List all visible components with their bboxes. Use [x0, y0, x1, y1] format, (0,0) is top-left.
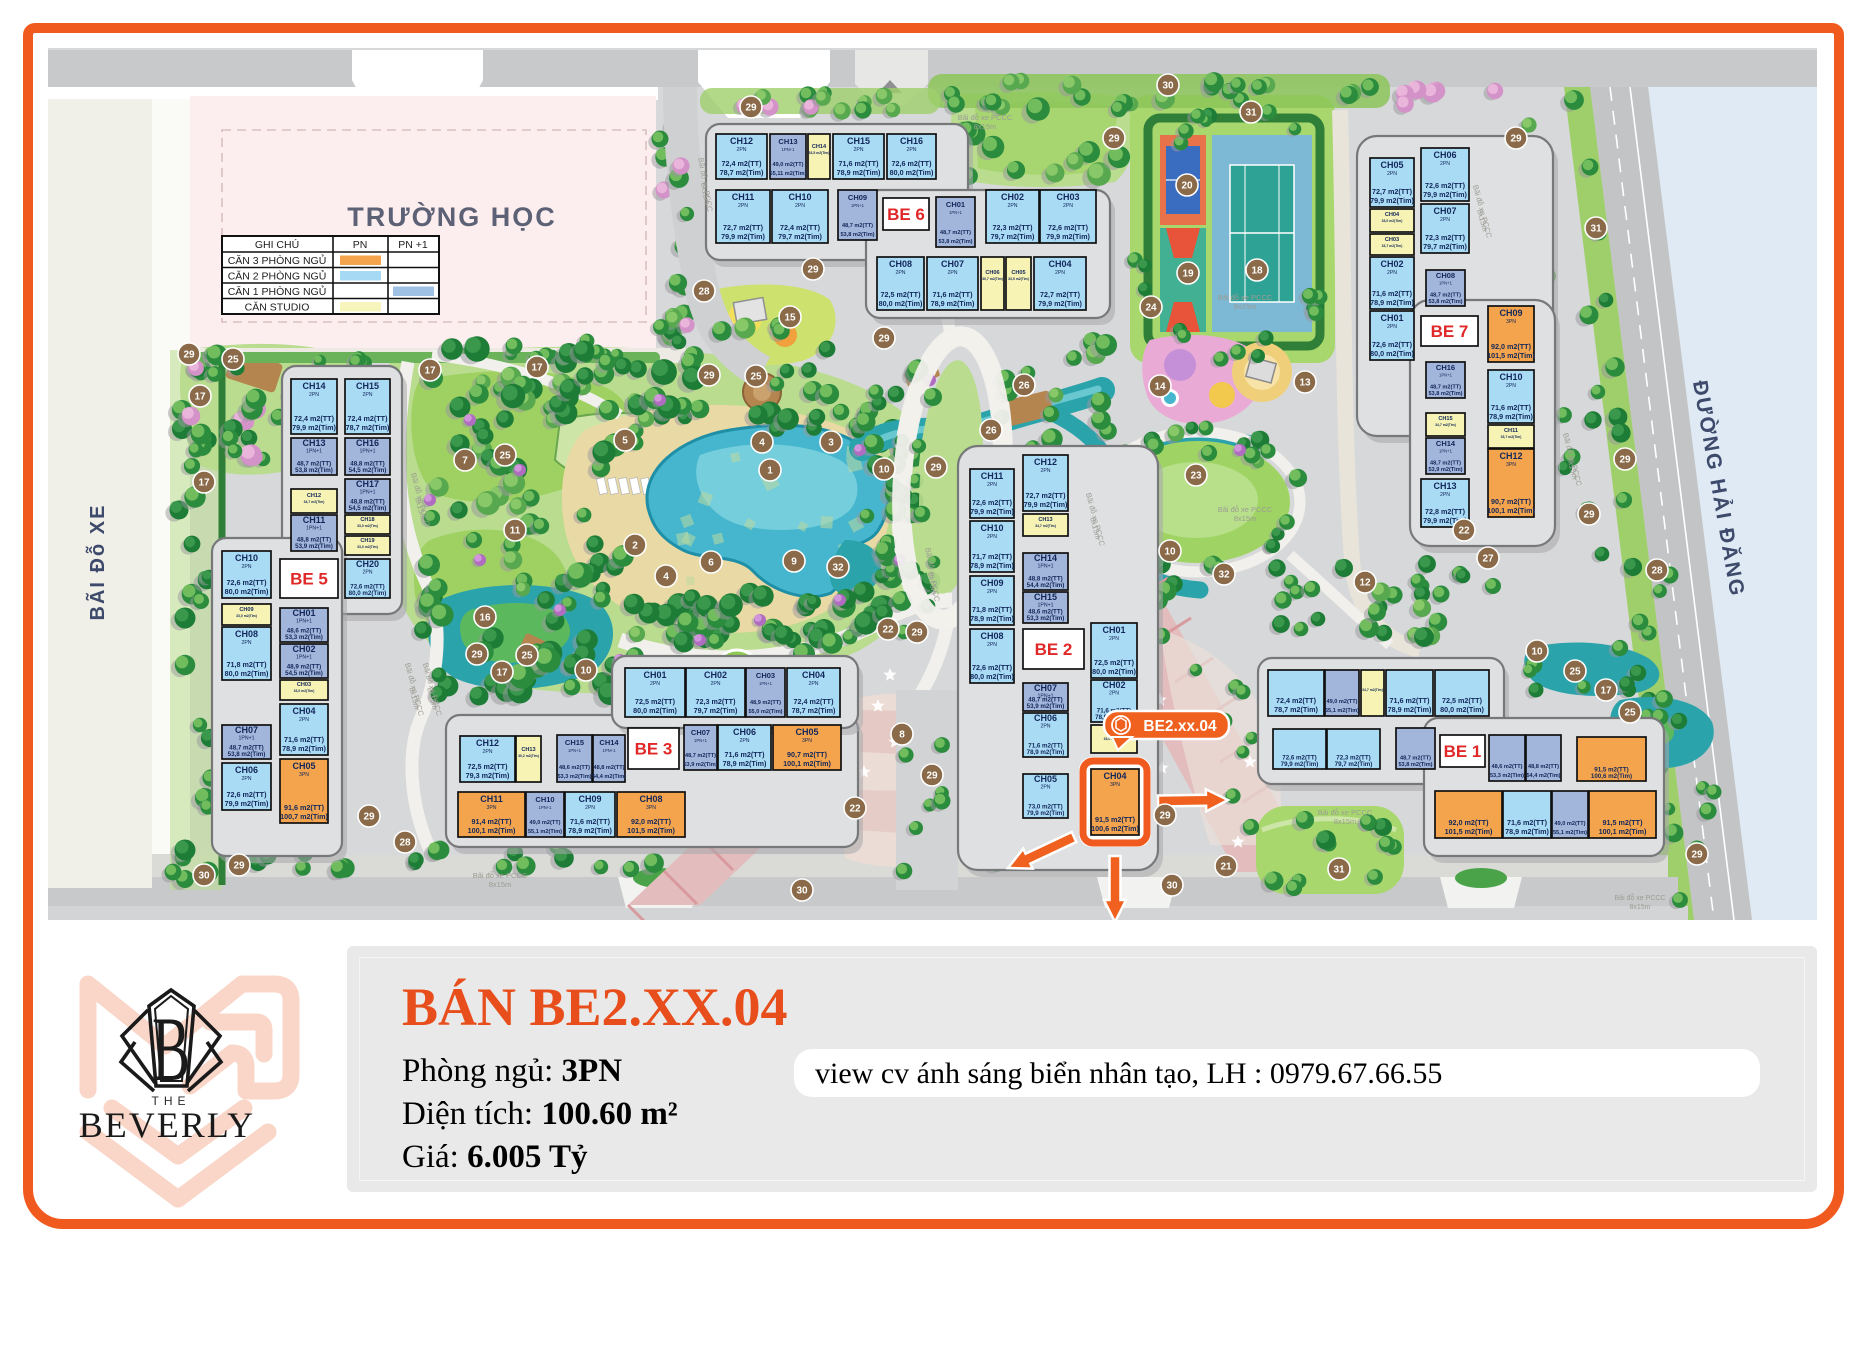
- svg-text:53,8 m2(Tim): 53,8 m2(Tim): [938, 239, 972, 245]
- svg-text:29: 29: [1510, 134, 1522, 145]
- svg-text:2PN: 2PN: [1109, 691, 1119, 697]
- svg-text:48,7 m2(TT): 48,7 m2(TT): [685, 753, 716, 759]
- svg-text:CH01: CH01: [643, 670, 666, 680]
- svg-text:8x15m: 8x15m: [1234, 302, 1257, 311]
- svg-text:CH04: CH04: [1103, 771, 1126, 781]
- svg-text:71,6 m2(TT): 71,6 m2(TT): [1491, 403, 1532, 412]
- svg-text:71,8 m2(TT): 71,8 m2(TT): [972, 605, 1013, 614]
- svg-text:33,5 m2(Tim): 33,5 m2(Tim): [1008, 277, 1029, 281]
- svg-text:71,6 m2(TT): 71,6 m2(TT): [839, 159, 880, 168]
- svg-text:CH05: CH05: [1011, 270, 1025, 276]
- svg-text:CĂN 2 PHÒNG NGỦ: CĂN 2 PHÒNG NGỦ: [228, 270, 327, 283]
- svg-text:CH08: CH08: [980, 631, 1003, 641]
- svg-text:48,6 m2(TT): 48,6 m2(TT): [559, 765, 590, 771]
- svg-text:CH16: CH16: [356, 438, 379, 448]
- svg-text:CH07: CH07: [235, 725, 258, 735]
- svg-text:72,6 m2(TT): 72,6 m2(TT): [972, 663, 1013, 672]
- svg-text:CĂN STUDIO: CĂN STUDIO: [245, 301, 310, 314]
- svg-text:CH14: CH14: [302, 381, 325, 391]
- svg-text:17: 17: [424, 366, 436, 377]
- svg-text:79,9 m2(Tim): 79,9 m2(Tim): [970, 507, 1014, 516]
- svg-text:23: 23: [1190, 471, 1202, 482]
- svg-text:1PN+1: 1PN+1: [306, 449, 322, 455]
- svg-text:91,5 m2(TT): 91,5 m2(TT): [1095, 815, 1136, 824]
- svg-text:29: 29: [1159, 811, 1171, 822]
- svg-text:18: 18: [1251, 266, 1263, 277]
- svg-text:72,4 m2(TT): 72,4 m2(TT): [722, 159, 763, 168]
- svg-text:29: 29: [1691, 850, 1703, 861]
- svg-text:1PN+1: 1PN+1: [949, 210, 963, 215]
- svg-text:72,7 m2(TT): 72,7 m2(TT): [1040, 290, 1081, 299]
- svg-text:CH04: CH04: [292, 706, 315, 716]
- svg-text:2PN: 2PN: [853, 147, 863, 153]
- svg-text:1PN+1: 1PN+1: [296, 655, 312, 661]
- svg-text:80,0 m2(Tim): 80,0 m2(Tim): [1370, 349, 1414, 358]
- svg-text:CH12: CH12: [1034, 457, 1057, 467]
- svg-text:BÃI Đỗ XE: BÃI Đỗ XE: [85, 504, 109, 621]
- svg-text:48,9 m2(TT): 48,9 m2(TT): [750, 700, 781, 706]
- svg-text:CH03: CH03: [756, 671, 775, 680]
- svg-text:53,9 m2(Tim): 53,9 m2(Tim): [295, 543, 333, 550]
- svg-text:78,7 m2(Tim): 78,7 m2(Tim): [1274, 705, 1318, 714]
- svg-text:28: 28: [698, 287, 710, 298]
- svg-text:55,1 m2(Tim): 55,1 m2(Tim): [1553, 830, 1587, 836]
- svg-text:1PN+1: 1PN+1: [238, 736, 254, 742]
- svg-text:1PN+1: 1PN+1: [759, 681, 773, 686]
- svg-text:54,4 m2(Tim): 54,4 m2(Tim): [592, 774, 626, 780]
- svg-text:B: B: [152, 998, 190, 1100]
- svg-text:72,6 m2(TT): 72,6 m2(TT): [1048, 223, 1089, 232]
- svg-text:2PN: 2PN: [585, 805, 595, 811]
- svg-text:10: 10: [1164, 547, 1176, 558]
- svg-text:BE 7: BE 7: [1431, 322, 1469, 341]
- svg-text:2PN: 2PN: [947, 270, 957, 276]
- svg-text:CH02: CH02: [1102, 680, 1125, 690]
- svg-text:79,9 m2(Tim): 79,9 m2(Tim): [1423, 190, 1467, 199]
- svg-text:79,7 m2(Tim): 79,7 m2(Tim): [991, 232, 1035, 241]
- svg-text:31: 31: [1245, 108, 1257, 119]
- svg-text:78,7 m2(Tim): 78,7 m2(Tim): [346, 423, 390, 432]
- svg-text:90,7 m2(TT): 90,7 m2(TT): [787, 750, 828, 759]
- svg-text:79,9 m2(Tim): 79,9 m2(Tim): [1370, 196, 1414, 205]
- svg-text:78,7 m2(Tim): 78,7 m2(Tim): [792, 706, 836, 715]
- svg-text:21: 21: [1220, 862, 1232, 873]
- svg-text:CH06: CH06: [733, 727, 756, 737]
- svg-text:CH06: CH06: [235, 765, 258, 775]
- svg-text:48,7 m2(TT): 48,7 m2(TT): [1400, 756, 1431, 762]
- svg-text:34,7 m2(Tim): 34,7 m2(Tim): [1035, 524, 1056, 528]
- svg-text:71,7 m2(TT): 71,7 m2(TT): [972, 552, 1013, 561]
- svg-text:CH02: CH02: [292, 644, 315, 654]
- svg-text:80,0 m2(Tim): 80,0 m2(Tim): [225, 669, 269, 678]
- svg-text:CH11: CH11: [1504, 428, 1518, 434]
- svg-text:72,5 m2(TT): 72,5 m2(TT): [1094, 658, 1135, 667]
- svg-text:80,0 m2(Tim): 80,0 m2(Tim): [1092, 667, 1136, 676]
- svg-text:48,7 m2(TT): 48,7 m2(TT): [940, 230, 971, 236]
- svg-text:CĂN 3 PHÒNG NGỦ: CĂN 3 PHÒNG NGỦ: [228, 254, 327, 267]
- svg-text:72,5 m2(TT): 72,5 m2(TT): [1442, 696, 1483, 705]
- svg-text:8: 8: [899, 730, 905, 741]
- svg-text:CH08: CH08: [639, 794, 662, 804]
- svg-text:54,4 m2(Tim): 54,4 m2(Tim): [1526, 773, 1560, 779]
- svg-text:79,7 m2(Tim): 79,7 m2(Tim): [1423, 242, 1467, 251]
- svg-text:BE2.xx.04: BE2.xx.04: [1143, 718, 1217, 735]
- svg-text:100,6 m2(Tim): 100,6 m2(Tim): [1591, 773, 1632, 780]
- svg-text:CH18: CH18: [360, 517, 374, 523]
- svg-text:33,0 m2(Tim): 33,0 m2(Tim): [357, 524, 378, 528]
- svg-text:78,9 m2(Tim): 78,9 m2(Tim): [1489, 412, 1533, 421]
- svg-text:8x15m: 8x15m: [1629, 904, 1650, 911]
- svg-text:80,0 m2(Tim): 80,0 m2(Tim): [890, 168, 934, 177]
- svg-text:CH01: CH01: [1102, 625, 1125, 635]
- svg-text:32: 32: [1218, 570, 1230, 581]
- svg-text:CH07: CH07: [691, 728, 710, 737]
- svg-text:92,0 m2(TT): 92,0 m2(TT): [1491, 342, 1532, 351]
- svg-text:49,0 m2(TT): 49,0 m2(TT): [529, 820, 560, 826]
- svg-text:53,3 m2(Tim): 53,3 m2(Tim): [557, 774, 591, 780]
- svg-text:CH06: CH06: [1034, 713, 1057, 723]
- svg-text:34,7 m2(Tim): 34,7 m2(Tim): [304, 500, 325, 504]
- svg-text:CH10: CH10: [1499, 372, 1522, 382]
- svg-text:CH11: CH11: [303, 515, 326, 525]
- svg-text:3PN: 3PN: [1110, 782, 1120, 788]
- svg-text:71,6 m2(TT): 71,6 m2(TT): [933, 290, 974, 299]
- svg-text:71,8 m2(TT): 71,8 m2(TT): [227, 660, 268, 669]
- svg-text:91,6 m2(TT): 91,6 m2(TT): [284, 803, 325, 812]
- svg-text:72,8 m2(TT): 72,8 m2(TT): [1425, 507, 1466, 516]
- svg-text:16: 16: [479, 613, 491, 624]
- svg-text:CH13: CH13: [521, 747, 535, 753]
- svg-text:72,3 m2(TT): 72,3 m2(TT): [1425, 233, 1466, 242]
- svg-text:13: 13: [1299, 378, 1311, 389]
- svg-text:2PN: 2PN: [1440, 217, 1450, 223]
- svg-text:72,6 m2(TT): 72,6 m2(TT): [227, 578, 268, 587]
- svg-text:78,9 m2(Tim): 78,9 m2(Tim): [1370, 298, 1414, 307]
- svg-text:22: 22: [849, 804, 861, 815]
- svg-text:78,9 m2(Tim): 78,9 m2(Tim): [1505, 827, 1549, 836]
- svg-text:Bãi đỗ xe PCCC: Bãi đỗ xe PCCC: [1318, 808, 1373, 817]
- svg-text:2PN: 2PN: [1387, 171, 1397, 177]
- svg-text:17: 17: [1600, 686, 1612, 697]
- svg-text:CH13: CH13: [1038, 517, 1052, 523]
- svg-text:2PN: 2PN: [1040, 724, 1050, 730]
- svg-text:22: 22: [1458, 526, 1470, 537]
- svg-text:28: 28: [1651, 566, 1663, 577]
- svg-text:8x15m: 8x15m: [1234, 514, 1257, 523]
- svg-text:CH11: CH11: [981, 471, 1004, 481]
- svg-text:32: 32: [832, 563, 844, 574]
- svg-text:2PN: 2PN: [710, 681, 720, 687]
- svg-text:BE 6: BE 6: [887, 205, 925, 224]
- svg-text:CH15: CH15: [847, 136, 870, 146]
- svg-text:5: 5: [622, 436, 628, 447]
- svg-text:2PN: 2PN: [362, 392, 372, 398]
- svg-text:29: 29: [183, 350, 195, 361]
- svg-text:CH09: CH09: [578, 794, 601, 804]
- svg-text:71,6 m2(TT): 71,6 m2(TT): [570, 817, 611, 826]
- svg-text:78,9 m2(Tim): 78,9 m2(Tim): [1027, 749, 1065, 756]
- svg-text:2PN: 2PN: [1506, 383, 1516, 389]
- svg-text:10: 10: [878, 465, 890, 476]
- svg-text:20: 20: [1181, 181, 1193, 192]
- svg-text:6: 6: [708, 558, 714, 569]
- svg-text:100,1 m2(Tim): 100,1 m2(Tim): [468, 826, 516, 835]
- svg-text:2PN: 2PN: [1440, 161, 1450, 167]
- svg-text:72,4 m2(TT): 72,4 m2(TT): [780, 223, 821, 232]
- svg-text:10: 10: [1531, 647, 1543, 658]
- svg-text:14: 14: [1154, 382, 1166, 393]
- svg-text:55,1 m2(Tim): 55,1 m2(Tim): [528, 829, 562, 835]
- svg-text:3PN: 3PN: [802, 738, 812, 744]
- svg-text:2PN: 2PN: [739, 738, 749, 744]
- svg-text:29: 29: [807, 265, 819, 276]
- svg-text:1PN+1: 1PN+1: [359, 449, 375, 455]
- svg-text:72,3 m2(TT): 72,3 m2(TT): [993, 223, 1034, 232]
- svg-text:CH08: CH08: [1436, 271, 1455, 280]
- svg-text:78,9 m2(Tim): 78,9 m2(Tim): [931, 299, 975, 308]
- svg-text:29: 29: [471, 650, 483, 661]
- svg-text:CH15: CH15: [1438, 416, 1452, 422]
- svg-text:27: 27: [1482, 554, 1494, 565]
- svg-text:91,5 m2(TT): 91,5 m2(TT): [1603, 818, 1644, 827]
- svg-text:17: 17: [198, 478, 210, 489]
- svg-text:CH03: CH03: [297, 682, 311, 688]
- svg-text:CH12: CH12: [1499, 451, 1522, 461]
- svg-text:72,4 m2(TT): 72,4 m2(TT): [794, 697, 835, 706]
- svg-text:2PN: 2PN: [906, 147, 916, 153]
- svg-text:2PN: 2PN: [736, 147, 746, 153]
- svg-text:CH15: CH15: [565, 738, 584, 747]
- svg-text:92,0 m2(TT): 92,0 m2(TT): [631, 817, 672, 826]
- svg-text:78,9 m2(Tim): 78,9 m2(Tim): [1388, 705, 1432, 714]
- svg-text:CH08: CH08: [235, 629, 258, 639]
- svg-text:101,5 m2(Tim): 101,5 m2(Tim): [627, 826, 675, 835]
- svg-text:GHI CHÚ: GHI CHÚ: [255, 238, 299, 251]
- svg-text:25: 25: [521, 651, 533, 662]
- svg-text:29: 29: [1583, 510, 1595, 521]
- svg-text:91,4 m2(TT): 91,4 m2(TT): [472, 817, 513, 826]
- svg-text:80,0 m2(Tim): 80,0 m2(Tim): [633, 706, 677, 715]
- svg-text:1PN+1: 1PN+1: [851, 203, 865, 208]
- svg-text:72,4 m2(TT): 72,4 m2(TT): [1276, 696, 1317, 705]
- svg-text:92,0 m2(TT): 92,0 m2(TT): [1449, 818, 1490, 827]
- svg-text:12: 12: [1359, 578, 1371, 589]
- svg-text:72,5 m2(TT): 72,5 m2(TT): [468, 762, 509, 771]
- svg-text:72,7 m2(TT): 72,7 m2(TT): [1372, 187, 1413, 196]
- svg-text:79,9 m2(Tim): 79,9 m2(Tim): [1281, 761, 1319, 768]
- svg-text:78,9 m2(Tim): 78,9 m2(Tim): [282, 744, 326, 753]
- svg-text:3: 3: [828, 438, 834, 449]
- svg-text:CH06: CH06: [985, 270, 999, 276]
- svg-text:54,5 m2(Tim): 54,5 m2(Tim): [349, 467, 387, 474]
- svg-text:CH04: CH04: [1385, 212, 1400, 218]
- svg-text:48,7 m2(TT): 48,7 m2(TT): [1430, 293, 1461, 299]
- svg-text:71,6 m2(TT): 71,6 m2(TT): [1372, 289, 1413, 298]
- svg-text:29: 29: [233, 861, 245, 872]
- svg-text:PN +1: PN +1: [398, 239, 428, 251]
- svg-text:BE 1: BE 1: [1444, 742, 1482, 761]
- svg-text:2PN: 2PN: [1109, 636, 1119, 642]
- svg-text:CH12: CH12: [730, 136, 753, 146]
- svg-text:79,9 m2(Tim): 79,9 m2(Tim): [1024, 500, 1068, 509]
- svg-text:79,9 m2(Tim): 79,9 m2(Tim): [225, 799, 269, 808]
- svg-text:33,7 m2(Tim): 33,7 m2(Tim): [1382, 244, 1403, 248]
- svg-text:1PN+1: 1PN+1: [1439, 449, 1453, 454]
- svg-text:72,6 m2(TT): 72,6 m2(TT): [1425, 181, 1466, 190]
- svg-text:1PN+1: 1PN+1: [603, 748, 617, 753]
- svg-text:25: 25: [227, 355, 239, 366]
- svg-text:78,9 m2(Tim): 78,9 m2(Tim): [568, 826, 612, 835]
- svg-text:25: 25: [499, 451, 511, 462]
- svg-text:101,5 m2(Tim): 101,5 m2(Tim): [1487, 351, 1535, 360]
- svg-text:30: 30: [1162, 81, 1174, 92]
- svg-text:2PN: 2PN: [987, 642, 997, 648]
- svg-text:2PN: 2PN: [1387, 324, 1397, 330]
- svg-text:CH07: CH07: [941, 259, 964, 269]
- svg-text:34,7 m2(Tim): 34,7 m2(Tim): [1435, 423, 1456, 427]
- svg-text:1PN+1: 1PN+1: [1439, 281, 1453, 286]
- svg-text:29: 29: [703, 371, 715, 382]
- svg-text:CH01: CH01: [292, 608, 315, 618]
- svg-text:CH04: CH04: [1048, 259, 1071, 269]
- svg-text:1: 1: [767, 466, 773, 477]
- svg-text:72,5 m2(TT): 72,5 m2(TT): [635, 697, 676, 706]
- svg-text:53,8 m2(Tim): 53,8 m2(Tim): [840, 232, 874, 238]
- svg-text:78,9 m2(Tim): 78,9 m2(Tim): [837, 168, 881, 177]
- svg-text:BE 5: BE 5: [290, 570, 328, 589]
- svg-text:53,3 m2(Tim): 53,3 m2(Tim): [1490, 773, 1524, 779]
- svg-text:CH02: CH02: [1001, 192, 1024, 202]
- svg-text:2PN: 2PN: [1440, 492, 1450, 498]
- svg-text:3PN: 3PN: [299, 772, 309, 778]
- svg-text:79,9 m2(Tim): 79,9 m2(Tim): [721, 232, 765, 241]
- svg-text:79,7 m2(Tim): 79,7 m2(Tim): [778, 232, 822, 241]
- svg-text:1PN+1: 1PN+1: [306, 526, 322, 532]
- svg-text:72,4 m2(TT): 72,4 m2(TT): [348, 414, 389, 423]
- svg-text:2PN: 2PN: [1055, 270, 1065, 276]
- svg-text:79,9 m2(Tim): 79,9 m2(Tim): [292, 423, 336, 432]
- svg-text:2PN: 2PN: [309, 392, 319, 398]
- svg-text:2PN: 2PN: [738, 203, 748, 209]
- svg-text:33,0 m2(Tim): 33,0 m2(Tim): [1382, 219, 1403, 223]
- svg-text:CH14: CH14: [1436, 439, 1456, 448]
- svg-text:3PN: 3PN: [646, 805, 656, 811]
- svg-text:71,6 m2(TT): 71,6 m2(TT): [1507, 818, 1548, 827]
- svg-text:24: 24: [1145, 303, 1157, 314]
- svg-text:53,9 m2(Tim): 53,9 m2(Tim): [683, 762, 717, 768]
- svg-text:2PN: 2PN: [1040, 785, 1050, 791]
- svg-text:CH14: CH14: [812, 144, 827, 150]
- svg-text:TRƯỜNG HỌC: TRƯỜNG HỌC: [347, 201, 556, 232]
- svg-text:PN: PN: [353, 239, 368, 251]
- svg-text:9: 9: [791, 557, 797, 568]
- svg-text:CH05: CH05: [292, 761, 315, 771]
- svg-text:2PN: 2PN: [808, 681, 818, 687]
- svg-text:1PN+1: 1PN+1: [694, 738, 708, 743]
- svg-text:2PN: 2PN: [795, 203, 805, 209]
- svg-text:49,0 m2(TT): 49,0 m2(TT): [1326, 699, 1357, 705]
- svg-text:72,6 m2(TT): 72,6 m2(TT): [972, 498, 1013, 507]
- svg-text:CH15: CH15: [356, 381, 379, 391]
- svg-text:1PN+1: 1PN+1: [568, 748, 582, 753]
- svg-text:30,2 m2(Tim): 30,2 m2(Tim): [518, 754, 539, 758]
- svg-text:8x15m: 8x15m: [489, 880, 512, 889]
- svg-text:53,3 m2(Tim): 53,3 m2(Tim): [1027, 615, 1065, 622]
- svg-text:48,8 m2(TT): 48,8 m2(TT): [593, 765, 624, 771]
- svg-text:CH09: CH09: [239, 607, 253, 613]
- svg-text:Bãi đỗ xe PCCC: Bãi đỗ xe PCCC: [473, 871, 528, 880]
- svg-text:78,9 m2(Tim): 78,9 m2(Tim): [970, 614, 1014, 623]
- svg-text:79,7 m2(Tim): 79,7 m2(Tim): [694, 706, 738, 715]
- svg-text:2PN: 2PN: [895, 270, 905, 276]
- svg-text:2PN: 2PN: [1007, 203, 1017, 209]
- svg-text:2PN: 2PN: [987, 589, 997, 595]
- svg-text:48,7 m2(TT): 48,7 m2(TT): [842, 223, 873, 229]
- svg-text:90,7 m2(TT): 90,7 m2(TT): [1491, 497, 1532, 506]
- svg-text:3PN: 3PN: [486, 805, 496, 811]
- svg-text:79,9 m2(Tim): 79,9 m2(Tim): [1046, 232, 1090, 241]
- svg-text:71,6 m2(TT): 71,6 m2(TT): [284, 735, 325, 744]
- svg-text:72,7 m2(TT): 72,7 m2(TT): [1026, 491, 1067, 500]
- svg-text:22: 22: [882, 625, 894, 636]
- svg-text:CH11: CH11: [480, 794, 503, 804]
- svg-text:33,5 m2(Tim): 33,5 m2(Tim): [809, 151, 830, 155]
- svg-text:71,6 m2(TT): 71,6 m2(TT): [725, 750, 766, 759]
- svg-text:80,0 m2(Tim): 80,0 m2(Tim): [879, 299, 923, 308]
- svg-text:17: 17: [531, 363, 543, 374]
- svg-text:78,9 m2(Tim): 78,9 m2(Tim): [970, 561, 1014, 570]
- svg-text:CH13: CH13: [1433, 481, 1456, 491]
- svg-text:29: 29: [363, 812, 375, 823]
- svg-text:100,1 m2(Tim): 100,1 m2(Tim): [1487, 506, 1535, 515]
- svg-text:2PN: 2PN: [650, 681, 660, 687]
- svg-text:25: 25: [1569, 667, 1581, 678]
- svg-text:78,9 m2(Tim): 78,9 m2(Tim): [723, 759, 767, 768]
- svg-text:4: 4: [663, 572, 669, 583]
- svg-text:100,7 m2(Tim): 100,7 m2(Tim): [280, 812, 328, 821]
- svg-text:72,6 m2(TT): 72,6 m2(TT): [1372, 340, 1413, 349]
- svg-text:2PN: 2PN: [987, 534, 997, 540]
- svg-text:26: 26: [985, 426, 997, 437]
- svg-text:CĂN 1 PHÒNG NGỦ: CĂN 1 PHÒNG NGỦ: [228, 285, 327, 298]
- svg-text:3PN: 3PN: [1506, 462, 1516, 468]
- svg-text:79,9 m2(Tim): 79,9 m2(Tim): [1027, 810, 1065, 817]
- svg-text:72,3 m2(TT): 72,3 m2(TT): [696, 697, 737, 706]
- svg-text:48,6 m2(TT): 48,6 m2(TT): [1491, 764, 1522, 770]
- svg-text:CH03: CH03: [1056, 192, 1079, 202]
- svg-text:Bãi đỗ xe PCCC: Bãi đỗ xe PCCC: [1615, 893, 1666, 902]
- svg-text:CH08: CH08: [889, 259, 912, 269]
- svg-text:BE 2: BE 2: [1035, 640, 1073, 659]
- svg-text:33,0 m2(Tim): 33,0 m2(Tim): [357, 545, 378, 549]
- svg-text:78,7 m2(Tim): 78,7 m2(Tim): [720, 168, 764, 177]
- svg-text:1PN+1: 1PN+1: [359, 490, 375, 496]
- svg-text:CH01: CH01: [1380, 313, 1403, 323]
- svg-text:101,5 m2(Tim): 101,5 m2(Tim): [1445, 827, 1493, 836]
- svg-text:2PN: 2PN: [1040, 468, 1050, 474]
- svg-text:30,7 m2(Tim): 30,7 m2(Tim): [982, 277, 1003, 281]
- svg-text:79,3 m2(Tim): 79,3 m2(Tim): [466, 771, 510, 780]
- svg-text:30: 30: [1166, 881, 1178, 892]
- svg-text:Bãi đỗ xe PCCC: Bãi đỗ xe PCCC: [1218, 293, 1273, 302]
- svg-text:2PN: 2PN: [362, 570, 372, 576]
- svg-text:55,11 m2(Tim): 55,11 m2(Tim): [770, 171, 807, 177]
- svg-text:54,5 m2(Tim): 54,5 m2(Tim): [285, 670, 323, 677]
- svg-text:71,6 m2(TT): 71,6 m2(TT): [1390, 696, 1431, 705]
- svg-text:CH16: CH16: [900, 136, 923, 146]
- svg-text:55,1 m2(Tim): 55,1 m2(Tim): [1325, 708, 1359, 714]
- svg-text:CH14: CH14: [1034, 553, 1057, 563]
